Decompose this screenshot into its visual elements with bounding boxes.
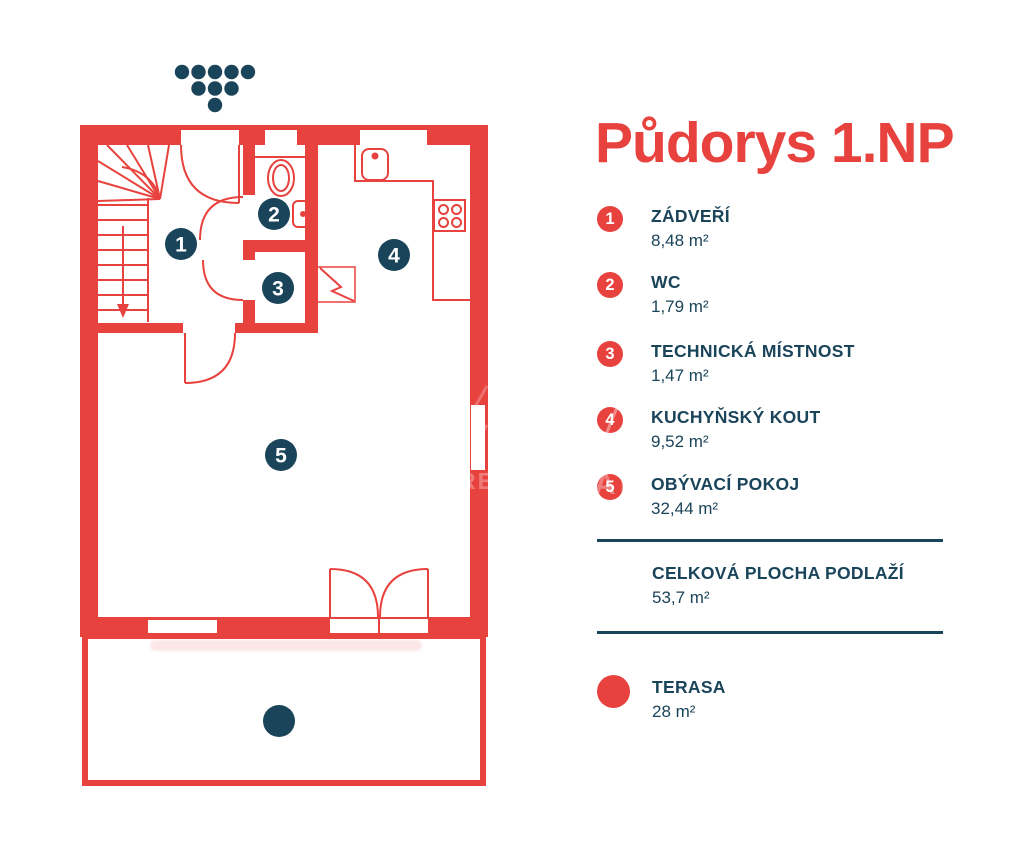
legend-number-badge: 1 <box>597 206 623 232</box>
svg-text:4: 4 <box>388 245 400 268</box>
hall-door-arc <box>185 333 235 383</box>
watermark-letters: AK <box>594 468 645 502</box>
total-area-label: CELKOVÁ PLOCHA PODLAŽÍ <box>652 563 904 584</box>
room-marker-3: 3 <box>262 272 294 304</box>
room-area: 1,79 m² <box>651 297 709 316</box>
room-area: 28 m² <box>652 702 726 721</box>
terrace-dot <box>263 705 295 737</box>
stove-icon <box>434 200 465 231</box>
divider-line <box>597 631 943 634</box>
room-marker-2: 2 <box>258 198 290 230</box>
room-name: WC <box>651 272 709 293</box>
company-logo-dots-icon <box>175 65 255 112</box>
total-area-value: 53,7 m² <box>652 588 904 607</box>
room-area: 9,52 m² <box>651 432 820 451</box>
terrace-badge <box>597 675 630 708</box>
room-markers: 1 2 3 4 5 <box>165 198 410 471</box>
tech-room-door-arc <box>203 260 243 300</box>
legend-number-badge: 3 <box>597 341 623 367</box>
room-area: 1,47 m² <box>651 366 855 385</box>
watermark-smudge <box>150 640 422 651</box>
svg-text:1: 1 <box>175 234 187 257</box>
legend-item-terasa: TERASA 28 m² <box>597 675 726 721</box>
legend-item-zadveri: 1 ZÁDVEŘÍ 8,48 m² <box>597 206 730 250</box>
room-name: OBÝVACÍ POKOJ <box>651 474 799 495</box>
staircase <box>98 145 169 322</box>
divider-line <box>597 539 943 542</box>
room-area: 8,48 m² <box>651 231 730 250</box>
room-marker-5: 5 <box>265 439 297 471</box>
svg-text:3: 3 <box>272 278 284 301</box>
legend-number: 1 <box>605 210 614 229</box>
french-door-arcs <box>330 569 428 617</box>
toilet-icon <box>268 160 294 196</box>
room-name: TERASA <box>652 677 726 698</box>
room-marker-4: 4 <box>378 239 410 271</box>
wall-break-icon <box>318 267 355 302</box>
kitchen-window <box>360 130 427 145</box>
room-name: TECHNICKÁ MÍSTNOST <box>651 341 855 362</box>
watermark-letters: RE <box>459 468 495 495</box>
entry-door-arc <box>181 145 239 203</box>
legend-item-kuchynsky-kout: 4 KUCHYŇSKÝ KOUT 9,52 m² <box>597 407 820 451</box>
svg-text:2: 2 <box>268 204 280 227</box>
interior-walls <box>80 145 318 333</box>
living-window <box>148 620 217 633</box>
room-name: ZÁDVEŘÍ <box>651 206 730 227</box>
legend-item-technicka-mistnost: 3 TECHNICKÁ MÍSTNOST 1,47 m² <box>597 341 855 385</box>
total-area-block: CELKOVÁ PLOCHA PODLAŽÍ 53,7 m² <box>652 563 904 607</box>
entry-door-opening <box>181 130 239 145</box>
svg-text:5: 5 <box>275 445 287 468</box>
wc-window <box>265 130 297 145</box>
legend-number: 2 <box>605 276 614 295</box>
legend-number-badge: 2 <box>597 272 623 298</box>
kitchen-sink-icon <box>362 149 388 180</box>
room-area: 32,44 m² <box>651 499 799 518</box>
page-title: Půdorys 1.NP <box>595 114 954 174</box>
legend-item-wc: 2 WC 1,79 m² <box>597 272 709 316</box>
room-name: KUCHYŇSKÝ KOUT <box>651 407 820 428</box>
room-marker-1: 1 <box>165 228 197 260</box>
legend-number: 3 <box>605 345 614 364</box>
